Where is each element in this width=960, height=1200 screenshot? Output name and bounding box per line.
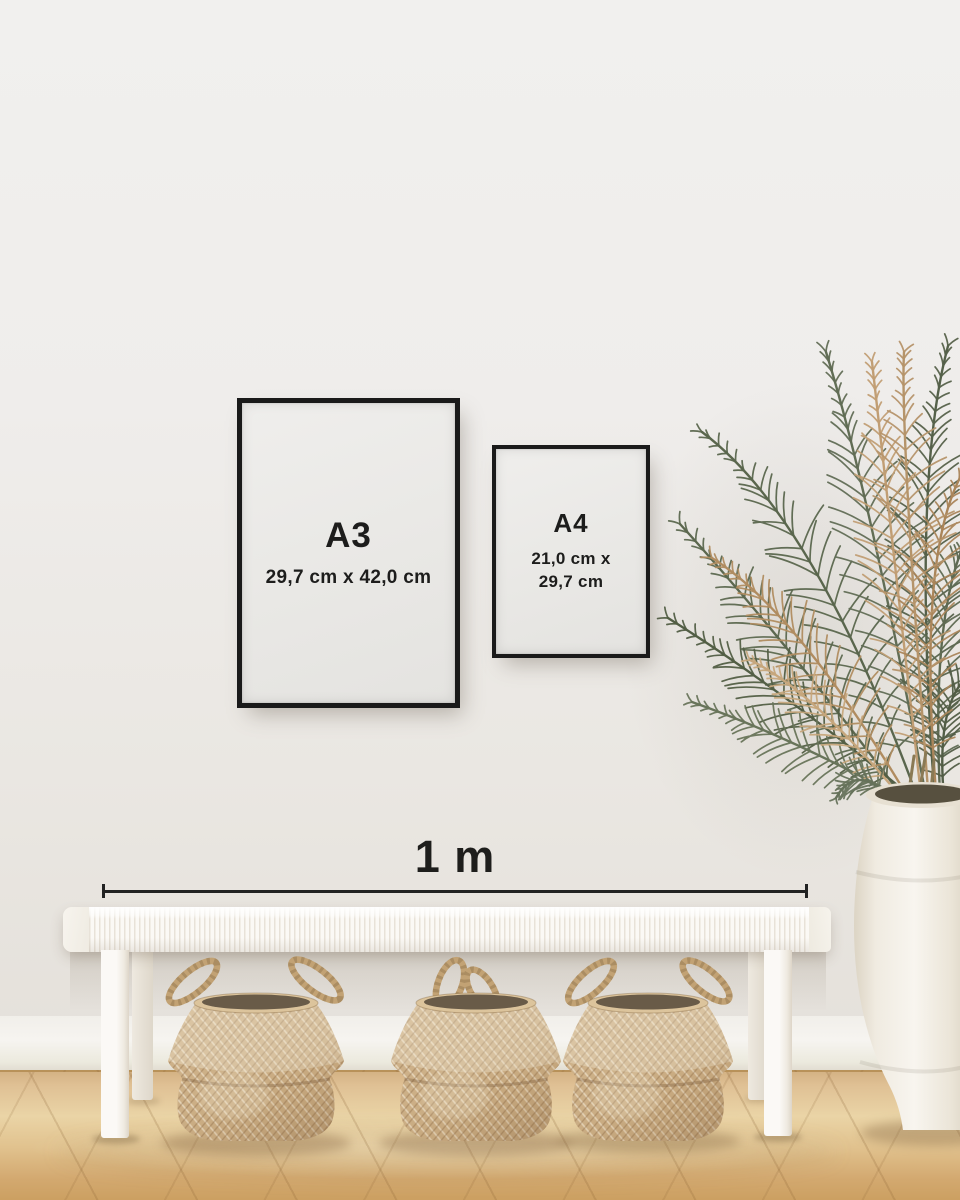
scale-bar-line bbox=[102, 884, 808, 898]
poster-a3-dimensions: 29,7 cm x 42,0 cm bbox=[266, 567, 432, 589]
frame-a4: A4 21,0 cm x 29,7 cm bbox=[492, 445, 650, 658]
wood-floor bbox=[0, 1070, 960, 1200]
poster-a4-dimensions-line1: 21,0 cm x bbox=[531, 548, 610, 570]
wall-shadow-behind-plant bbox=[620, 380, 960, 880]
scale-bar-rule bbox=[102, 890, 808, 893]
size-guide-room-photo: A3 29,7 cm x 42,0 cm A4 21,0 cm x 29,7 c… bbox=[0, 0, 960, 1200]
poster-a4-size-label: A4 bbox=[553, 510, 588, 536]
scale-bar-right-tick bbox=[805, 884, 808, 898]
scale-bar-1m: 1 m bbox=[102, 838, 808, 898]
poster-a4-dimensions-line2: 29,7 cm bbox=[531, 571, 610, 593]
under-bench-wall-shadow bbox=[70, 952, 826, 1024]
baseboard bbox=[0, 1016, 960, 1072]
poster-a4-dimensions: 21,0 cm x 29,7 cm bbox=[531, 548, 610, 592]
poster-a4: A4 21,0 cm x 29,7 cm bbox=[496, 449, 646, 654]
scale-bar-label: 1 m bbox=[102, 838, 808, 876]
frame-a3: A3 29,7 cm x 42,0 cm bbox=[237, 398, 460, 708]
poster-a3-size-label: A3 bbox=[325, 518, 372, 553]
poster-a3: A3 29,7 cm x 42,0 cm bbox=[242, 403, 455, 703]
